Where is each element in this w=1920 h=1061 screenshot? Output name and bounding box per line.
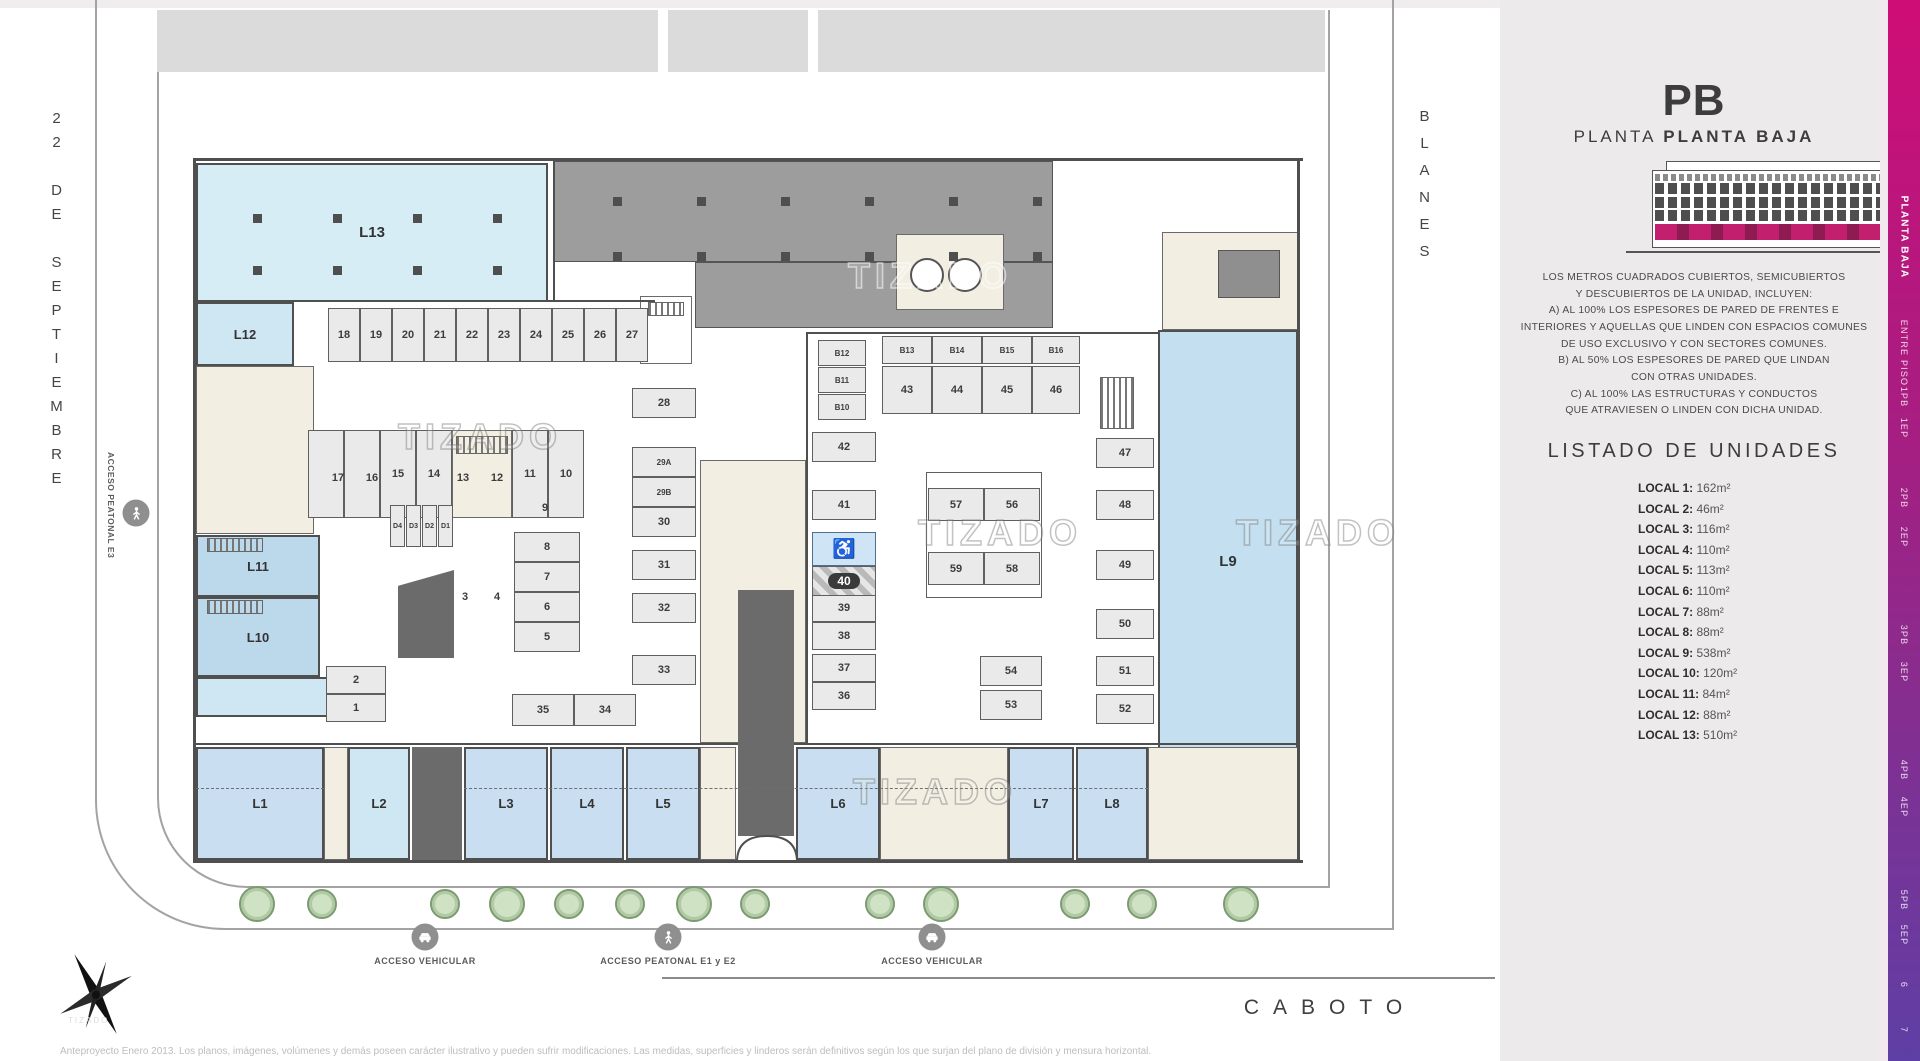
- floor-tab-1pb[interactable]: 1PB: [1899, 387, 1909, 408]
- parking-stall-45: 45: [982, 366, 1032, 414]
- parking-stall-38: 38: [812, 622, 876, 650]
- parking-stall-B13: B13: [882, 336, 932, 364]
- parking-stall-54: 54: [980, 656, 1042, 686]
- entrance-arch: [736, 834, 798, 862]
- parking-stall-label-3: 3: [462, 591, 468, 603]
- utility-room: [324, 747, 348, 860]
- floor-tab-4ep[interactable]: 4EP: [1899, 797, 1909, 818]
- tree: [676, 886, 712, 922]
- tree: [554, 889, 584, 919]
- column-dot: [413, 266, 422, 275]
- parking-stall-26: 26: [584, 308, 616, 362]
- measurement-notes: LOS METROS CUADRADOS CUBIERTOS, SEMICUBI…: [1508, 270, 1880, 420]
- unit-list-item: LOCAL 7: 88m²: [1638, 602, 1858, 623]
- unit-list-item: LOCAL 4: 110m²: [1638, 540, 1858, 561]
- column-dot: [613, 197, 622, 206]
- highlighted-stall-40: 40: [812, 566, 876, 596]
- parking-stall-23: 23: [488, 308, 520, 362]
- floor-title-name: PLANTA BAJA: [1663, 127, 1814, 146]
- column-dot: [697, 252, 706, 261]
- parking-stall-47: 47: [1096, 438, 1154, 468]
- unit-list-item: LOCAL 10: 120m²: [1638, 663, 1858, 684]
- storefront-line: [196, 788, 324, 789]
- wall: [193, 158, 1303, 161]
- parking-stall-36: 36: [812, 682, 876, 710]
- floor-tab-7[interactable]: 7: [1899, 1027, 1909, 1033]
- utility-room: [196, 366, 314, 534]
- parking-stall-51: 51: [1096, 656, 1154, 686]
- unit-list-item: LOCAL 11: 84m²: [1638, 684, 1858, 705]
- tree: [239, 886, 275, 922]
- tree: [1127, 889, 1157, 919]
- column-dot: [493, 214, 502, 223]
- wall: [806, 332, 1158, 334]
- tree: [307, 889, 337, 919]
- units-list: LOCAL 1: 162m²LOCAL 2: 46m²LOCAL 3: 116m…: [1638, 478, 1858, 746]
- floor-tab-planta-baja[interactable]: PLANTA BAJA: [1899, 196, 1910, 279]
- parking-stall-label-17: 17: [332, 472, 344, 484]
- parking-stall-D4: D4: [390, 505, 405, 547]
- utility-room: [1148, 747, 1300, 860]
- wall: [1297, 158, 1300, 863]
- parking-stall-6: 6: [514, 592, 580, 622]
- column-dot: [493, 266, 502, 275]
- wall: [193, 300, 655, 302]
- building-ground-floor-highlight: [1655, 224, 1899, 240]
- parking-stall-7: 7: [514, 562, 580, 592]
- parking-stall-50: 50: [1096, 609, 1154, 639]
- floor-title: PLANTA PLANTA BAJA: [1500, 127, 1888, 147]
- street-name-bottom: CABOTO: [1244, 996, 1416, 1020]
- floor-title-word: PLANTA: [1574, 127, 1656, 146]
- parking-stall-48: 48: [1096, 490, 1154, 520]
- disclaimer-text: Anteproyecto Enero 2013. Los planos, imá…: [60, 1046, 1500, 1057]
- parking-stall-53: 53: [980, 690, 1042, 720]
- parking-stall-42: 42: [812, 432, 876, 462]
- column-dot: [253, 214, 262, 223]
- storefront-line: [464, 788, 1008, 789]
- stairs: [207, 538, 263, 552]
- parking-stall-B15: B15: [982, 336, 1032, 364]
- building-ground-line: [1626, 251, 1920, 253]
- column-dot: [1033, 252, 1042, 261]
- parking-stall-46: 46: [1032, 366, 1080, 414]
- local-L6: L6: [796, 747, 880, 860]
- parking-stall-27: 27: [616, 308, 648, 362]
- unit-list-item: LOCAL 5: 113m²: [1638, 560, 1858, 581]
- parking-stall-D3: D3: [406, 505, 421, 547]
- floor-tab-6[interactable]: 6: [1899, 982, 1909, 988]
- car-icon: [412, 924, 439, 951]
- strip-edge: [1880, 0, 1888, 1061]
- wall: [553, 160, 555, 300]
- parking-stall-label-9: 9: [542, 502, 548, 514]
- floor-tab-3ep[interactable]: 3EP: [1899, 662, 1909, 683]
- unit-list-item: LOCAL 1: 162m²: [1638, 478, 1858, 499]
- tree: [430, 889, 460, 919]
- local-annex: [196, 677, 346, 717]
- local-L1: L1: [196, 747, 324, 860]
- parking-stall-22: 22: [456, 308, 488, 362]
- parking-stall-29B: 29B: [632, 477, 696, 507]
- local-L8: L8: [1076, 747, 1148, 860]
- parking-stall-18: 18: [328, 308, 360, 362]
- tree: [489, 886, 525, 922]
- parking-stall-31: 31: [632, 550, 696, 580]
- parking-stall-label-13: 13: [457, 472, 469, 484]
- column-dot: [333, 266, 342, 275]
- column-dot: [413, 214, 422, 223]
- parking-stall-49: 49: [1096, 550, 1154, 580]
- building-floor-band: [1655, 197, 1899, 208]
- building-elevation: [1652, 170, 1902, 248]
- parking-stall-D2: D2: [422, 505, 437, 547]
- parking-stall-37: 37: [812, 654, 876, 682]
- tank-circle: [948, 258, 982, 292]
- compass-icon: [50, 945, 142, 1041]
- building-body: [1652, 170, 1902, 248]
- column-dot: [781, 197, 790, 206]
- access-label: ACCESO VEHICULAR: [881, 956, 983, 966]
- parking-stall-24: 24: [520, 308, 552, 362]
- local-L13: L13: [196, 163, 548, 302]
- tree: [1223, 886, 1259, 922]
- parking-stall-19: 19: [360, 308, 392, 362]
- floor-code: PB: [1500, 76, 1888, 126]
- column-dot: [697, 197, 706, 206]
- parking-stall-B16: B16: [1032, 336, 1080, 364]
- stairs: [648, 302, 684, 316]
- unit-list-item: LOCAL 12: 88m²: [1638, 705, 1858, 726]
- parking-stall-33: 33: [632, 655, 696, 685]
- local-L2: L2: [348, 747, 410, 860]
- parking-stall-52: 52: [1096, 694, 1154, 724]
- tree: [1060, 889, 1090, 919]
- parking-stall-B14: B14: [932, 336, 982, 364]
- floor-selector-strip: PLANTA BAJAENTRE PISO1PB1EP2PB2EP3PB3EP4…: [1888, 0, 1920, 1061]
- ramp: [412, 747, 462, 860]
- floor-plan: L13L12L11L10L9L1L2L3L4L5L6L7L81819202122…: [0, 0, 1500, 1061]
- column-dot: [333, 214, 342, 223]
- wall: [806, 332, 808, 743]
- column-dot: [1033, 197, 1042, 206]
- parking-stall-34: 34: [574, 694, 636, 726]
- floor-tab-2ep[interactable]: 2EP: [1899, 527, 1909, 548]
- unit-list-item: LOCAL 2: 46m²: [1638, 499, 1858, 520]
- column-dot: [865, 252, 874, 261]
- floor-tab-3pb[interactable]: 3PB: [1899, 625, 1909, 646]
- column-dot: [865, 197, 874, 206]
- sidebar: PB PLANTA PLANTA BAJA LOS METROS CUADRAD…: [1500, 0, 1888, 1061]
- local-L4: L4: [550, 747, 624, 860]
- parking-stall-B10: B10: [818, 394, 866, 420]
- local-L7: L7: [1008, 747, 1074, 860]
- parking-stall-39: 39: [812, 594, 876, 622]
- tiny-watermark: TIZADO: [68, 1016, 109, 1025]
- floor-tab-5pb[interactable]: 5PB: [1899, 890, 1909, 911]
- ramp: [398, 570, 454, 658]
- stairs: [456, 436, 508, 454]
- parking-stall-label-12: 12: [491, 472, 503, 484]
- parking-stall-1: 1: [326, 694, 386, 722]
- parking-stall-21: 21: [424, 308, 456, 362]
- column-dot: [949, 197, 958, 206]
- tree: [923, 886, 959, 922]
- parking-stall-8: 8: [514, 532, 580, 562]
- parking-stall-29A: 29A: [632, 447, 696, 477]
- floor-tab-4pb[interactable]: 4PB: [1899, 760, 1909, 781]
- wall: [193, 158, 196, 863]
- stall-40-badge: 40: [828, 573, 859, 589]
- street-name-right: BLANES: [1416, 108, 1433, 270]
- parking-stall-20: 20: [392, 308, 424, 362]
- tree: [740, 889, 770, 919]
- local-L9: L9: [1158, 330, 1298, 792]
- parking-stall-43: 43: [882, 366, 932, 414]
- tank-circle: [910, 258, 944, 292]
- storage-block-outline: [926, 472, 1042, 598]
- unit-list-item: LOCAL 6: 110m²: [1638, 581, 1858, 602]
- column-dot: [781, 252, 790, 261]
- access-label: ACCESO PEATONAL E1 y E2: [600, 956, 736, 966]
- column-dot: [949, 252, 958, 261]
- person-icon: [655, 924, 682, 951]
- floor-tab-2pb[interactable]: 2PB: [1899, 488, 1909, 509]
- accessible-stall-cell: ♿: [812, 532, 876, 566]
- parking-stall-B11: B11: [818, 367, 866, 393]
- car-icon: [919, 924, 946, 951]
- stairs: [1100, 377, 1134, 429]
- parking-stall-B12: B12: [818, 340, 866, 366]
- column-dot: [613, 252, 622, 261]
- parking-stall-D1: D1: [438, 505, 453, 547]
- parking-stall-25: 25: [552, 308, 584, 362]
- building-floor-band: [1655, 183, 1899, 194]
- building-floor-band: [1655, 210, 1899, 221]
- utility-room: [700, 747, 736, 860]
- person-icon: [123, 500, 150, 527]
- dark-room: [1218, 250, 1280, 298]
- column-dot: [253, 266, 262, 275]
- parking-stall-41: 41: [812, 490, 876, 520]
- unit-list-item: LOCAL 9: 538m²: [1638, 643, 1858, 664]
- tree: [865, 889, 895, 919]
- utility-room: [880, 747, 1008, 860]
- parking-stall-2: 2: [326, 666, 386, 694]
- units-list-heading: LISTADO DE UNIDADES: [1500, 440, 1888, 463]
- ramp: [738, 590, 794, 836]
- unit-list-item: LOCAL 3: 116m²: [1638, 519, 1858, 540]
- stairs: [207, 600, 263, 614]
- page: L13L12L11L10L9L1L2L3L4L5L6L7L81819202122…: [0, 0, 1920, 1061]
- parking-stall-label-4: 4: [494, 591, 500, 603]
- access-label: ACCESO VEHICULAR: [374, 956, 476, 966]
- local-L12: L12: [196, 302, 294, 366]
- parking-stall-28: 28: [632, 388, 696, 418]
- unit-list-item: LOCAL 13: 510m²: [1638, 725, 1858, 746]
- parking-stall-44: 44: [932, 366, 982, 414]
- tree: [615, 889, 645, 919]
- parking-stall-label-16: 16: [366, 472, 378, 484]
- acceso-peatonal-e3-label: ACCESO PEATONAL E3: [106, 452, 116, 558]
- floor-tab-5ep[interactable]: 5EP: [1899, 925, 1909, 946]
- street-name-left: 22 DE SEPTIEMBRE: [48, 110, 65, 494]
- unit-list-item: LOCAL 8: 88m²: [1638, 622, 1858, 643]
- parking-stall-32: 32: [632, 593, 696, 623]
- building-parapet: [1655, 174, 1899, 181]
- floor-tab-1ep[interactable]: 1EP: [1899, 418, 1909, 439]
- parking-stall-5: 5: [514, 622, 580, 652]
- storefront-line: [1008, 788, 1148, 789]
- parking-stall-35: 35: [512, 694, 574, 726]
- parking-stall-30: 30: [632, 507, 696, 537]
- local-L5: L5: [626, 747, 700, 860]
- floor-tab-entre-piso[interactable]: ENTRE PISO: [1899, 320, 1909, 387]
- local-L3: L3: [464, 747, 548, 860]
- parking-stall-10: 10: [548, 430, 584, 518]
